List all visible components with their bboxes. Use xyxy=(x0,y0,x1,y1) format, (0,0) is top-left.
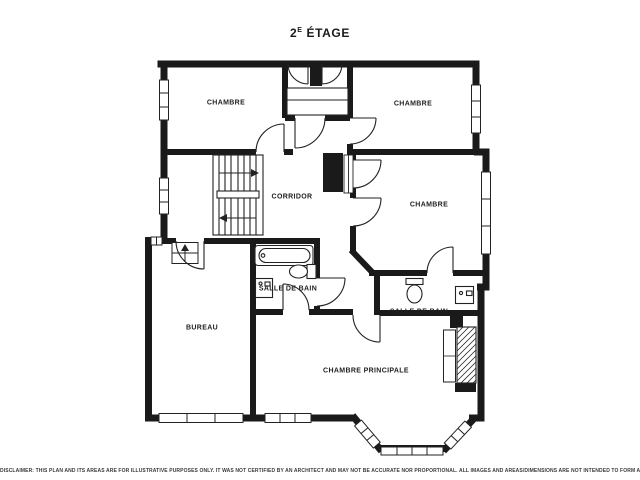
toilet-icon-bath-2 xyxy=(406,279,423,304)
staircase xyxy=(213,155,263,235)
room-label-chambre-principale: CHAMBRE PRINCIPALE xyxy=(323,368,409,375)
closet-divider-block xyxy=(310,64,322,86)
door-bath-2 xyxy=(353,315,380,342)
hatched-closet xyxy=(444,327,477,383)
room-label-corridor: CORRIDOR xyxy=(272,194,313,201)
disclaimer-text: DISCLAIMER: THIS PLAN AND ITS AREAS ARE … xyxy=(0,468,640,474)
window-right-mid xyxy=(482,172,491,254)
stair-landing-rail xyxy=(217,191,259,198)
window-principale-bottom xyxy=(265,414,311,423)
floorplan-page: 2E ÉTAGE xyxy=(0,0,640,480)
window-left-mid xyxy=(160,178,169,214)
room-label-bureau: BUREAU xyxy=(186,325,218,332)
windows xyxy=(151,80,491,455)
window-bureau-step xyxy=(151,237,162,245)
window-bay-right xyxy=(444,421,471,449)
top-closet-shelves xyxy=(287,88,348,115)
corridor-shelf xyxy=(344,155,353,193)
window-bureau-bottom xyxy=(159,414,243,423)
corridor-closet-block xyxy=(323,153,343,192)
closet-wall-block xyxy=(455,383,476,392)
door-chambre-3-entry xyxy=(427,247,453,273)
door-chambre-3-closet-1 xyxy=(353,160,381,188)
room-label-salle-de-bain-1: SALLE DE BAIN xyxy=(259,286,317,293)
door-chambre-3-closet-2 xyxy=(353,198,381,226)
window-left-upper xyxy=(160,80,169,120)
door-chambre-1 xyxy=(256,124,284,152)
sink-icon-bath-2 xyxy=(456,287,474,304)
room-label-chambre-2: CHAMBRE xyxy=(394,101,432,108)
floorplan-drawing xyxy=(0,0,640,480)
door-bath-1-side xyxy=(317,278,345,306)
window-bay-bottom xyxy=(381,447,443,455)
bathtub-icon xyxy=(255,246,313,266)
room-label-chambre-3: CHAMBRE xyxy=(410,202,448,209)
toilet-icon-bath-1 xyxy=(290,265,317,279)
window-bay-left xyxy=(355,420,381,448)
door-corridor-closet xyxy=(295,118,325,148)
room-label-chambre-1: CHAMBRE xyxy=(207,100,245,107)
door-chambre-2 xyxy=(350,118,376,144)
bath2-wall-block xyxy=(450,311,463,328)
room-label-salle-de-bain-2: SALLE DE BAIN xyxy=(390,309,448,316)
window-right-upper xyxy=(472,85,481,133)
